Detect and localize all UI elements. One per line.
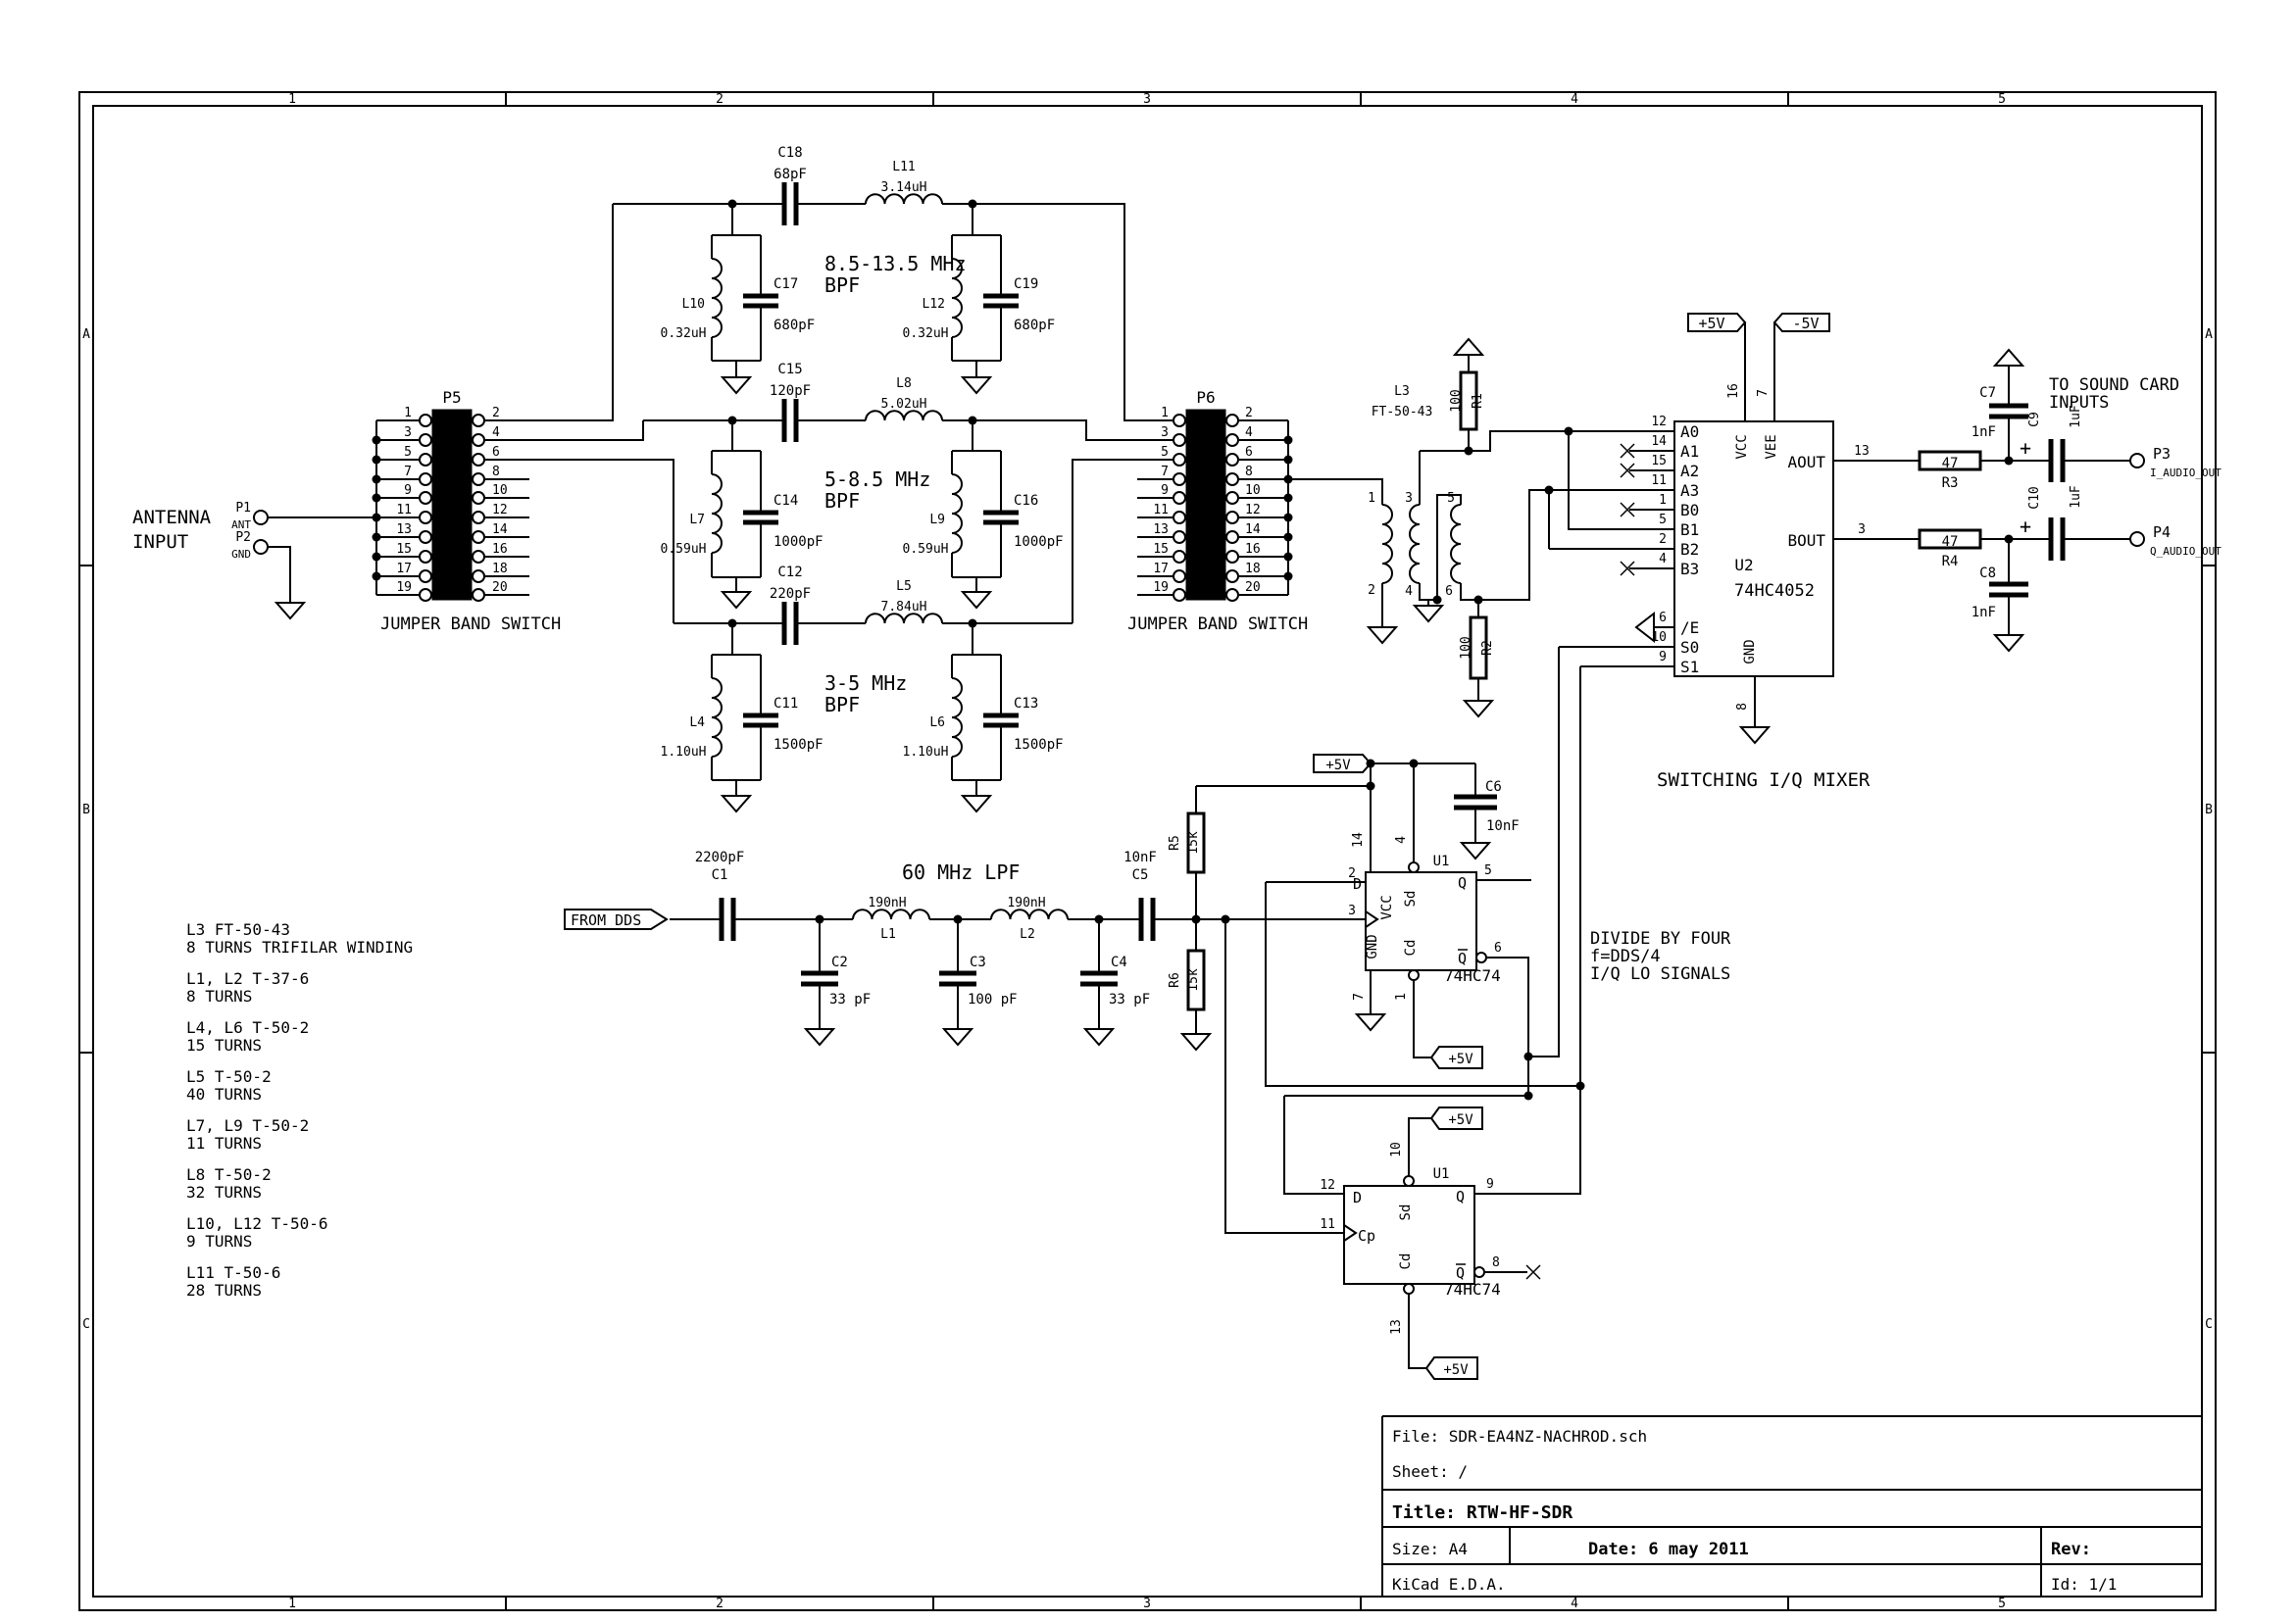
p5-pin-4: 4 <box>492 425 500 440</box>
u2-pin-10: 10 <box>1651 630 1667 645</box>
u1a-port-q: Q <box>1458 874 1467 892</box>
p6-pin-19: 19 <box>1153 580 1169 595</box>
note-l7l9-2: 11 TURNS <box>186 1134 262 1153</box>
connector-pin-circle <box>420 512 431 523</box>
junction-dot <box>1410 760 1419 768</box>
junction-dot <box>1367 760 1375 768</box>
u1b-qbar-bubble <box>1474 1267 1484 1277</box>
connector-pin-circle <box>420 589 431 601</box>
power-flags <box>1314 314 1829 1379</box>
u2-port-vcc: VCC <box>1734 434 1750 459</box>
u2-port-gnd: GND <box>1742 639 1758 664</box>
connector-pin-circle <box>1173 531 1185 543</box>
flag-plus5v-u2: +5V <box>1698 315 1724 332</box>
u2-port-aout: AOUT <box>1787 453 1825 471</box>
u2-port-s1: S1 <box>1680 658 1699 676</box>
l1-ref: L1 <box>880 927 896 942</box>
p5-pin-8: 8 <box>492 465 500 479</box>
p6-pin-8: 8 <box>1245 465 1253 479</box>
c3-val: 100 pF <box>968 992 1018 1008</box>
p5-pin-11: 11 <box>396 503 412 517</box>
connector-pin-circle <box>420 551 431 563</box>
titleblock-title: Title: RTW-HF-SDR <box>1392 1502 1572 1523</box>
border-col-2-top: 2 <box>716 92 724 107</box>
junction-dot <box>1095 915 1104 924</box>
c14-ref: C14 <box>774 493 798 509</box>
border-row-b-left: B <box>82 803 90 817</box>
l3-val: FT-50-43 <box>1372 405 1433 419</box>
port-p2-ref: P2 <box>235 530 251 545</box>
l3-pin-1: 1 <box>1368 491 1375 506</box>
u1a-port-sd: Sd <box>1403 891 1419 908</box>
c13-ref: C13 <box>1014 696 1038 712</box>
junction-dot <box>1474 596 1483 605</box>
u2-port-a3: A3 <box>1680 481 1699 500</box>
u1a-pin-1: 1 <box>1394 993 1409 1001</box>
connector-pin-circle <box>1226 589 1238 601</box>
u1a-pin-3: 3 <box>1348 904 1356 918</box>
u1b-val: 74HC74 <box>1444 1280 1501 1299</box>
border-row-c-right: C <box>2205 1317 2213 1332</box>
c11-val: 1500pF <box>774 737 824 753</box>
connector-pin-circle <box>1173 512 1185 523</box>
connector-pin-circle <box>1173 492 1185 504</box>
note-l10l12-1: L10, L12 T-50-6 <box>186 1214 328 1233</box>
p5-pin-16: 16 <box>492 542 508 557</box>
connector-pin-circle <box>1173 434 1185 446</box>
p5-ref: P5 <box>442 388 461 407</box>
c19-ref: C19 <box>1014 276 1038 292</box>
c15-val: 120pF <box>770 383 811 399</box>
u2-pin-6: 6 <box>1659 611 1667 625</box>
junction-dot <box>373 494 381 503</box>
p6-pin-9: 9 <box>1161 483 1169 498</box>
note-l11-2: 28 TURNS <box>186 1281 262 1300</box>
u1b-pin-13: 13 <box>1389 1319 1404 1335</box>
junction-dot <box>1284 533 1293 542</box>
connector-pin-circle <box>1226 415 1238 426</box>
u2-pin-2: 2 <box>1659 532 1667 547</box>
c5-ref: C5 <box>1132 867 1149 883</box>
c18-ref: C18 <box>777 145 802 161</box>
u1a-port-cd: Cd <box>1403 940 1419 957</box>
u1b-port-cp: Cp <box>1358 1227 1375 1245</box>
u2-port-b1: B1 <box>1680 520 1699 539</box>
u1b-cd-bubble <box>1404 1284 1414 1294</box>
r3-ref: R3 <box>1942 475 1959 491</box>
u1b-port-cd: Cd <box>1398 1254 1414 1270</box>
l12-ref: L12 <box>923 297 945 312</box>
p6-pin-15: 15 <box>1153 542 1169 557</box>
l3-ref: L3 <box>1394 384 1410 399</box>
u2-pin-3: 3 <box>1858 522 1866 537</box>
u1a-pin-14: 14 <box>1351 832 1366 848</box>
connector-pin-circle <box>1226 473 1238 485</box>
connector-pin-circle <box>473 589 484 601</box>
l10-val: 0.32uH <box>661 326 707 341</box>
junction-dot <box>728 200 737 209</box>
c19-val: 680pF <box>1014 318 1055 333</box>
bpf1-title: 8.5-13.5 MHz <box>824 252 967 275</box>
u1b-port-d: D <box>1353 1189 1362 1206</box>
c5-val: 10nF <box>1123 850 1157 865</box>
c9-ref: C9 <box>2027 412 2042 427</box>
l1-val: 190nH <box>868 896 906 910</box>
note-l8-2: 32 TURNS <box>186 1183 262 1202</box>
antenna-label-2: INPUT <box>132 531 188 553</box>
titleblock-id: Id: 1/1 <box>2051 1575 2117 1594</box>
junction-dot <box>373 456 381 465</box>
connector-pin-circle <box>473 473 484 485</box>
u2-port-a1: A1 <box>1680 442 1699 461</box>
note-l8-1: L8 T-50-2 <box>186 1165 272 1184</box>
note-l1l2-1: L1, L2 T-37-6 <box>186 969 309 988</box>
u2-port-vee: VEE <box>1764 434 1779 459</box>
titleblock-date: Date: 6 may 2011 <box>1588 1540 1749 1559</box>
from-dds-label: FROM_DDS <box>571 911 641 929</box>
p5-pin-6: 6 <box>492 445 500 460</box>
u1b-port-q: Q <box>1456 1188 1465 1205</box>
p6-caption: JUMPER BAND SWITCH <box>1127 615 1308 634</box>
junction-dot <box>969 200 977 209</box>
junction-dot <box>1524 1053 1533 1061</box>
port-p3-name: I_AUDIO_OUT <box>2150 467 2221 479</box>
connector-pin-circle <box>1173 551 1185 563</box>
c17-val: 680pF <box>774 318 815 333</box>
border-col-1-top: 1 <box>288 92 296 107</box>
junction-dot <box>969 619 977 628</box>
u1b-pin-9: 9 <box>1486 1177 1494 1192</box>
p6-pin-16: 16 <box>1245 542 1261 557</box>
titleblock-sheet: Sheet: / <box>1392 1462 1468 1481</box>
u1b-pin-11: 11 <box>1320 1217 1335 1232</box>
u2-pin-13: 13 <box>1854 444 1870 459</box>
connector-p6 <box>1186 410 1225 600</box>
l10-ref: L10 <box>682 297 705 312</box>
l6-val: 1.10uH <box>903 745 949 760</box>
u1a-cd-bubble <box>1409 970 1419 980</box>
c1-val: 2200pF <box>695 850 745 865</box>
connector-pin-circle <box>473 531 484 543</box>
junction-dot <box>1545 486 1554 495</box>
connector-p5 <box>432 410 472 600</box>
u2-port-bout: BOUT <box>1787 531 1825 550</box>
connector-pin-circle <box>1173 570 1185 582</box>
p5-pin-18: 18 <box>492 562 508 576</box>
c14-val: 1000pF <box>774 534 824 550</box>
inductors <box>712 194 1068 919</box>
p5-caption: JUMPER BAND SWITCH <box>380 615 561 634</box>
l11-ref: L11 <box>892 160 915 174</box>
transformer-l3 <box>1382 505 1461 583</box>
p6-pin-4: 4 <box>1245 425 1253 440</box>
junction-dot <box>1367 782 1375 791</box>
flag-plus5v-rail: +5V <box>1325 758 1351 773</box>
soundcard-caption-2: INPUTS <box>2049 393 2109 413</box>
border-col-1-bottom: 1 <box>288 1597 296 1611</box>
border-row-c-left: C <box>82 1317 90 1332</box>
p6-pin-10: 10 <box>1245 483 1261 498</box>
u2-pin-4: 4 <box>1659 552 1667 566</box>
soundcard-caption-1: TO SOUND CARD <box>2049 375 2179 395</box>
c1-ref: C1 <box>712 867 728 883</box>
p6-pin-1: 1 <box>1161 406 1169 420</box>
c6-ref: C6 <box>1485 779 1502 795</box>
r6-val: 15k <box>1186 968 1201 992</box>
l2-val: 190nH <box>1007 896 1045 910</box>
u1b-port-sd: Sd <box>1398 1205 1414 1221</box>
l3-pin-4: 4 <box>1405 584 1413 599</box>
junction-dot <box>1284 514 1293 522</box>
junction-dot <box>954 915 963 924</box>
u1a-port-gnd: GND <box>1365 934 1380 959</box>
note-l3-2: 8 TURNS TRIFILAR WINDING <box>186 938 413 957</box>
connector-pin-circle <box>420 473 431 485</box>
r4-val: 47 <box>1942 534 1959 550</box>
junctions <box>373 200 2014 1101</box>
c12-val: 220pF <box>770 586 811 602</box>
l12-val: 0.32uH <box>903 326 949 341</box>
l7-val: 0.59uH <box>661 542 707 557</box>
junction-dot <box>1284 436 1293 445</box>
u1a-pin-7: 7 <box>1352 993 1367 1001</box>
l6-ref: L6 <box>929 715 945 730</box>
c7-val: 1nF <box>1972 424 1996 440</box>
junction-dot <box>373 572 381 581</box>
border-col-2-bottom: 2 <box>716 1597 724 1611</box>
bpf2-title: 5-8.5 MHz <box>824 467 930 491</box>
p6-pin-3: 3 <box>1161 425 1169 440</box>
junction-dot <box>1284 456 1293 465</box>
connector-pin-circle <box>473 415 484 426</box>
connector-pin-circle <box>1173 415 1185 426</box>
p5-pin-17: 17 <box>396 562 412 576</box>
note-l10l12-2: 9 TURNS <box>186 1232 252 1251</box>
junction-dot <box>1222 915 1230 924</box>
titleblock-file: File: SDR-EA4NZ-NACHROD.sch <box>1392 1427 1647 1446</box>
connector-pin-circle <box>420 434 431 446</box>
junction-dot <box>1565 427 1573 436</box>
p6-pin-11: 11 <box>1153 503 1169 517</box>
c2-val: 33 pF <box>829 992 871 1008</box>
junction-dot <box>1192 915 1201 924</box>
bpf3-title: 3-5 MHz <box>824 671 907 695</box>
p5-pin-9: 9 <box>404 483 412 498</box>
labels-layer: 1234512345ABCABCFile: SDR-EA4NZ-NACHROD.… <box>82 92 2221 1611</box>
titleblock-rev: Rev: <box>2051 1540 2091 1559</box>
c4-val: 33 pF <box>1109 992 1150 1008</box>
l3-pin-6: 6 <box>1445 584 1453 599</box>
note-l3-1: L3 FT-50-43 <box>186 920 290 939</box>
r1-ref: R1 <box>1471 393 1485 409</box>
junction-dot <box>728 417 737 425</box>
p5-pin-10: 10 <box>492 483 508 498</box>
c16-val: 1000pF <box>1014 534 1064 550</box>
connector-pin-circle <box>473 434 484 446</box>
u2-pin-8: 8 <box>1735 703 1750 711</box>
junction-dot <box>2005 535 2014 544</box>
connector-pin-circle <box>1173 589 1185 601</box>
antenna-label-1: ANTENNA <box>132 507 212 528</box>
p5-pin-7: 7 <box>404 465 412 479</box>
note-l4l6-1: L4, L6 T-50-2 <box>186 1018 309 1037</box>
connector-pin-circle <box>420 570 431 582</box>
c13-val: 1500pF <box>1014 737 1064 753</box>
connector-pin-circle <box>420 454 431 466</box>
junction-dot <box>1576 1082 1585 1091</box>
c8-ref: C8 <box>1979 566 1996 581</box>
u2-pin-14: 14 <box>1651 434 1667 449</box>
u1b-pin-12: 12 <box>1320 1178 1335 1193</box>
port-p4-ref: P4 <box>2153 523 2171 541</box>
junction-dot <box>373 553 381 562</box>
u1a-pin-2: 2 <box>1348 866 1356 881</box>
c3-ref: C3 <box>970 955 986 970</box>
l4-ref: L4 <box>689 715 705 730</box>
port-p3-circle <box>2130 454 2144 467</box>
port-p1-ref: P1 <box>235 501 251 516</box>
junction-dot <box>373 533 381 542</box>
titleblock-vendor: KiCad E.D.A. <box>1392 1575 1506 1594</box>
junction-dot <box>1524 1092 1533 1101</box>
note-l1l2-2: 8 TURNS <box>186 987 252 1006</box>
mixer-caption: SWITCHING I/Q MIXER <box>1657 769 1871 791</box>
titleblock-size: Size: A4 <box>1392 1540 1468 1558</box>
bpf1-subtitle: BPF <box>824 273 860 297</box>
p6-pin-14: 14 <box>1245 522 1261 537</box>
divider-caption-1: DIVIDE BY FOUR <box>1590 929 1731 949</box>
r6-ref: R6 <box>1168 972 1182 988</box>
p6-pin-17: 17 <box>1153 562 1169 576</box>
c7-ref: C7 <box>1979 385 1996 401</box>
u1a-val: 74HC74 <box>1444 966 1501 985</box>
c18-val: 68pF <box>774 167 807 182</box>
r1-val: 100 <box>1449 389 1464 412</box>
c2-ref: C2 <box>831 955 848 970</box>
p6-pin-18: 18 <box>1245 562 1261 576</box>
c11-ref: C11 <box>774 696 798 712</box>
l9-val: 0.59uH <box>903 542 949 557</box>
connector-pin-circle <box>473 492 484 504</box>
schematic-canvas: 1234512345ABCABCFile: SDR-EA4NZ-NACHROD.… <box>0 0 2296 1623</box>
connector-pin-circle <box>473 570 484 582</box>
r2-ref: R2 <box>1480 640 1495 656</box>
junction-dot <box>969 417 977 425</box>
note-l4l6-2: 15 TURNS <box>186 1036 262 1055</box>
border-col-3-top: 3 <box>1143 92 1151 107</box>
c9-polarity: + <box>2020 436 2031 460</box>
connector-pin-circle <box>1226 512 1238 523</box>
grounds <box>276 339 2022 1050</box>
note-l5-1: L5 T-50-2 <box>186 1067 272 1086</box>
u1b-pin-10: 10 <box>1389 1142 1404 1157</box>
p5-pin-5: 5 <box>404 445 412 460</box>
p5-pin-12: 12 <box>492 503 508 517</box>
l3-pin-2: 2 <box>1368 583 1375 598</box>
flag-minus5v-u2: -5V <box>1792 315 1819 332</box>
l11-val: 3.14uH <box>881 180 927 195</box>
connector-pin-circle <box>1226 434 1238 446</box>
connector-pin-circle <box>1226 531 1238 543</box>
u2-port-e: /E <box>1680 618 1699 637</box>
c15-ref: C15 <box>777 362 802 377</box>
u2-pin-1: 1 <box>1659 493 1667 508</box>
junction-dot <box>1284 553 1293 562</box>
l9-ref: L9 <box>929 513 945 527</box>
lpf-title: 60 MHz LPF <box>902 861 1020 884</box>
junction-dot <box>1284 494 1293 503</box>
junction-dot <box>373 475 381 484</box>
l3-pin-5: 5 <box>1447 491 1455 506</box>
c10-ref: C10 <box>2027 486 2042 509</box>
r5-val: 15k <box>1186 831 1201 855</box>
u1a-pin-5: 5 <box>1484 863 1492 878</box>
u2-ref: U2 <box>1734 556 1753 574</box>
c17-ref: C17 <box>774 276 798 292</box>
junction-dot <box>373 436 381 445</box>
p5-pin-19: 19 <box>396 580 412 595</box>
u1a-pin-4: 4 <box>1394 836 1409 844</box>
p5-pin-3: 3 <box>404 425 412 440</box>
u2-port-a0: A0 <box>1680 422 1699 441</box>
junction-dot <box>1284 572 1293 581</box>
connector-pin-circle <box>1226 551 1238 563</box>
u1b-ref: U1 <box>1433 1166 1450 1182</box>
p6-pin-7: 7 <box>1161 465 1169 479</box>
l7-ref: L7 <box>689 513 705 527</box>
l8-ref: L8 <box>896 376 912 391</box>
bpf3-subtitle: BPF <box>824 693 860 716</box>
ff-u1a-74hc74 <box>1366 862 1486 980</box>
junction-dot <box>1465 447 1473 456</box>
r3-val: 47 <box>1942 456 1959 471</box>
p6-ref: P6 <box>1196 388 1215 407</box>
c10-polarity: + <box>2020 515 2031 538</box>
p5-pin-1: 1 <box>404 406 412 420</box>
u2-port-b2: B2 <box>1680 540 1699 559</box>
u1a-ref: U1 <box>1433 854 1450 869</box>
p5-pin-2: 2 <box>492 406 500 420</box>
u2-port-b3: B3 <box>1680 560 1699 578</box>
junction-dot <box>728 619 737 628</box>
p5-pin-20: 20 <box>492 580 508 595</box>
connector-pin-circle <box>420 531 431 543</box>
c6-val: 10nF <box>1486 818 1520 834</box>
flag-plus5v-u1b-sd: +5V <box>1448 1112 1473 1128</box>
junction-dot <box>373 514 381 522</box>
kicad-schematic-page: 1234512345ABCABCFile: SDR-EA4NZ-NACHROD.… <box>0 0 2296 1623</box>
p5-pin-13: 13 <box>396 522 412 537</box>
resistors <box>1188 372 1980 1009</box>
border-row-a-left: A <box>82 327 90 342</box>
r4-ref: R4 <box>1942 554 1959 569</box>
p6-pin-20: 20 <box>1245 580 1261 595</box>
port-p3-ref: P3 <box>2153 445 2171 463</box>
u2-val: 74HC4052 <box>1734 581 1815 601</box>
c8-val: 1nF <box>1972 605 1996 620</box>
junction-dot <box>816 915 824 924</box>
u2-pin-15: 15 <box>1651 454 1667 468</box>
l4-val: 1.10uH <box>661 745 707 760</box>
c4-ref: C4 <box>1111 955 1127 970</box>
u1b-sd-bubble <box>1404 1176 1414 1186</box>
p6-pin-2: 2 <box>1245 406 1253 420</box>
c12-ref: C12 <box>777 565 802 580</box>
port-p4-circle <box>2130 532 2144 546</box>
l8-val: 5.02uH <box>881 397 927 412</box>
border-col-3-bottom: 3 <box>1143 1597 1151 1611</box>
l2-ref: L2 <box>1020 927 1035 942</box>
